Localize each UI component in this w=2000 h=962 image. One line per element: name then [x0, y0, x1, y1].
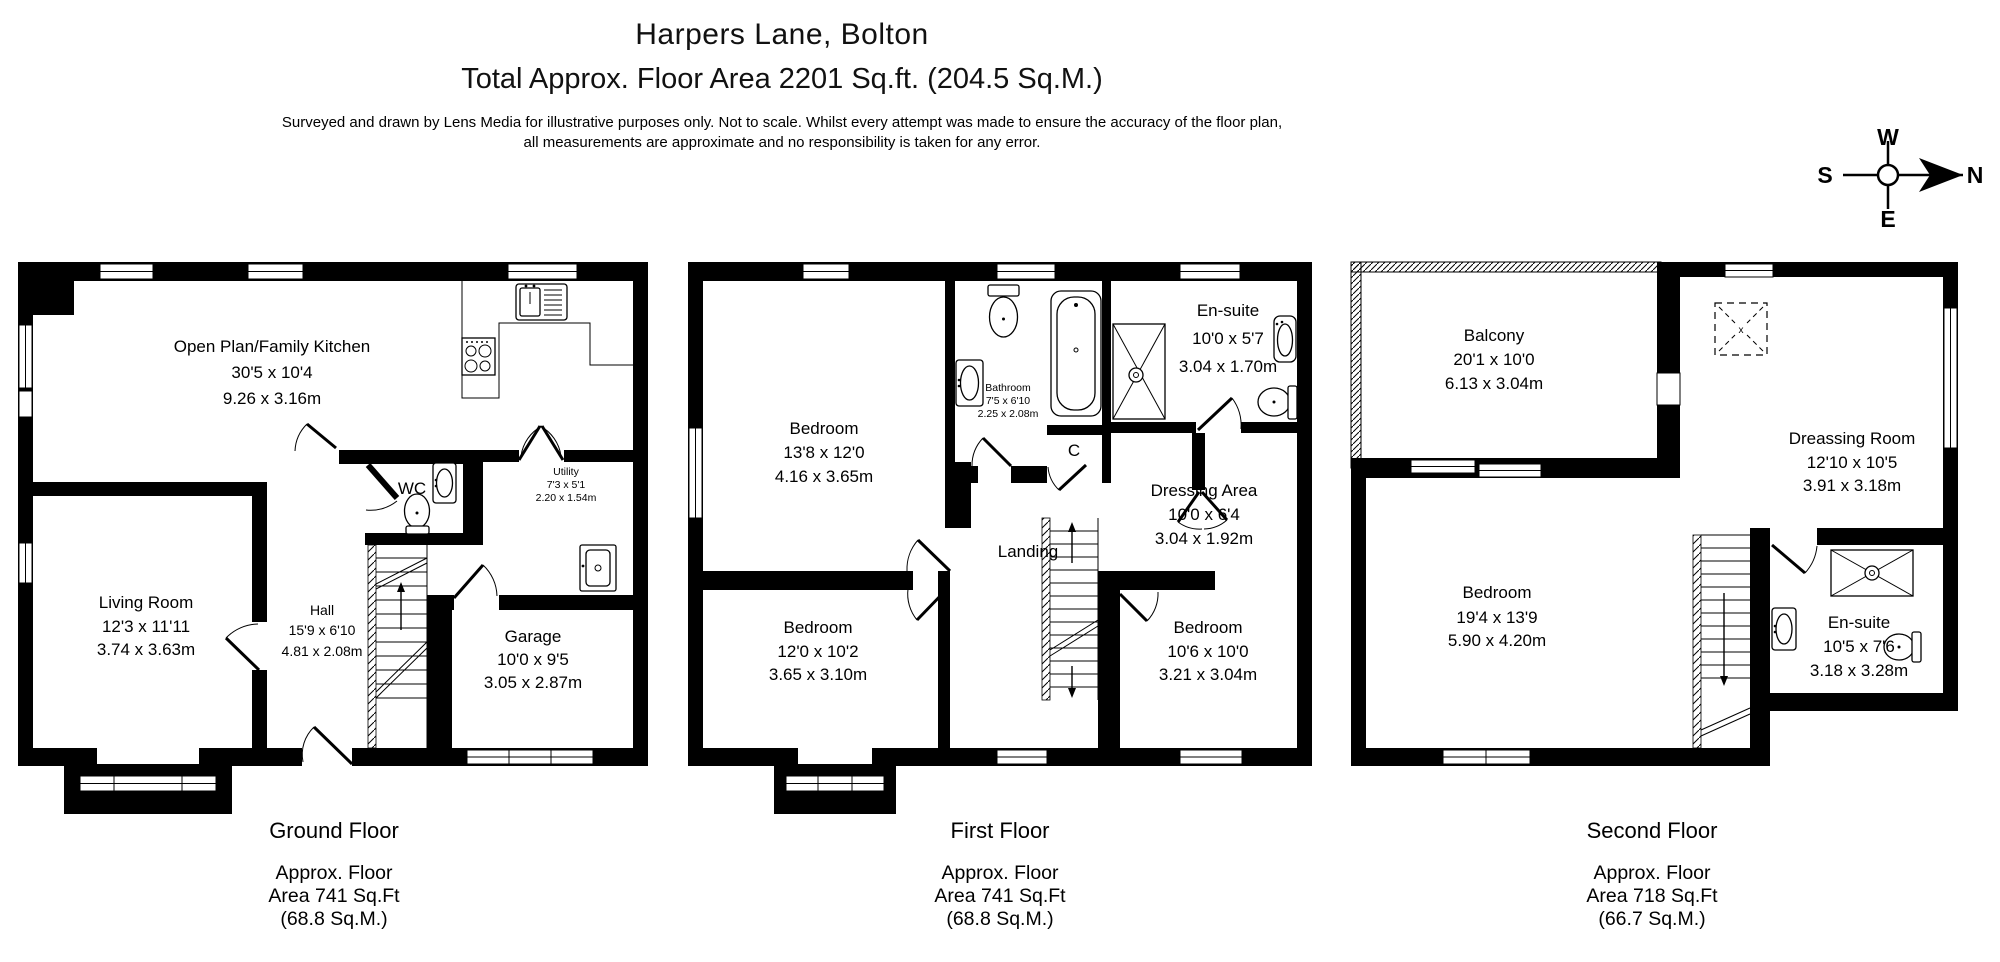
toilet-icon [1258, 386, 1297, 419]
floor-area-line: Approx. Floor [124, 862, 544, 885]
skylight-icon: x [1715, 303, 1767, 355]
ground-floor-caption: Ground Floor Approx. Floor Area 741 Sq.F… [124, 818, 544, 931]
svg-text:15'9 x 6'10: 15'9 x 6'10 [289, 622, 356, 638]
bay-window [64, 748, 232, 814]
svg-text:10'0 x 5'7: 10'0 x 5'7 [1192, 329, 1264, 348]
sink-icon [1274, 316, 1296, 362]
utility-label: Utility 7'3 x 5'1 2.20 x 1.54m [536, 466, 597, 504]
floorplan-page: Harpers Lane, Bolton Total Approx. Floor… [0, 0, 2000, 962]
svg-text:3.65 x 3.10m: 3.65 x 3.10m [769, 665, 867, 684]
ground-floor-plan: Open Plan/Family Kitchen 30'5 x 10'4 9.2… [14, 258, 648, 818]
toilet-icon [405, 494, 430, 534]
staircase [1693, 535, 1750, 748]
svg-text:20'1 x 10'0: 20'1 x 10'0 [1453, 350, 1534, 369]
living-room-label: Living Room 12'3 x 11'11 3.74 x 3.63m [97, 593, 195, 659]
svg-text:3.18 x 3.28m: 3.18 x 3.28m [1810, 661, 1908, 680]
shower-icon [1113, 324, 1165, 419]
svg-text:Bathroom: Bathroom [985, 382, 1031, 394]
svg-text:6.13 x 3.04m: 6.13 x 3.04m [1445, 374, 1543, 393]
svg-text:7'3 x 5'1: 7'3 x 5'1 [547, 479, 586, 491]
window [1443, 750, 1530, 764]
window [689, 428, 702, 518]
svg-text:13'8 x 12'0: 13'8 x 12'0 [783, 443, 864, 462]
svg-text:En-suite: En-suite [1197, 301, 1259, 320]
second-floor-caption: Second Floor Approx. Floor Area 718 Sq.F… [1442, 818, 1862, 931]
ensuite-label: En-suite 10'0 x 5'7 3.04 x 1.70m [1179, 301, 1277, 376]
sink-icon [956, 360, 983, 406]
svg-text:Utility: Utility [553, 466, 579, 478]
svg-text:30'5 x 10'4: 30'5 x 10'4 [231, 363, 312, 382]
svg-text:10'0 x 9'5: 10'0 x 9'5 [497, 650, 569, 669]
floor-area-line: (68.8 Sq.M.) [790, 908, 1210, 931]
svg-text:Open Plan/Family Kitchen: Open Plan/Family Kitchen [174, 337, 371, 356]
svg-text:Garage: Garage [505, 627, 562, 646]
shower-icon [1831, 550, 1913, 596]
svg-text:3.04 x 1.92m: 3.04 x 1.92m [1155, 529, 1253, 548]
svg-text:10'6 x 10'0: 10'6 x 10'0 [1167, 642, 1248, 661]
toilet-icon [988, 285, 1019, 337]
bedroom3-door [1120, 594, 1147, 621]
second-floor-plan: x Balcony 20'1 x 1 [1347, 258, 1962, 818]
kitchen-sink-icon [516, 284, 567, 320]
floor-area-line: Area 741 Sq.Ft [124, 885, 544, 908]
svg-text:Bedroom: Bedroom [1174, 618, 1243, 637]
wc-door [368, 465, 397, 498]
garage-label: Garage 10'0 x 9'5 3.05 x 2.87m [484, 627, 582, 692]
utility-double-door [519, 426, 563, 460]
compass-north: N [1967, 162, 1984, 188]
svg-text:10'0 x 6'4: 10'0 x 6'4 [1168, 505, 1240, 524]
svg-text:Living Room: Living Room [99, 593, 194, 612]
svg-text:Hall: Hall [310, 602, 334, 618]
bay-window [774, 748, 896, 814]
wc-label: WC [398, 479, 426, 498]
floor-area-line: Area 718 Sq.Ft [1442, 885, 1862, 908]
svg-text:12'3 x 11'11: 12'3 x 11'11 [102, 617, 190, 636]
svg-text:3.21 x 3.04m: 3.21 x 3.04m [1159, 665, 1257, 684]
svg-text:4.16 x 3.65m: 4.16 x 3.65m [775, 467, 873, 486]
svg-text:Dreassing Room: Dreassing Room [1789, 429, 1916, 448]
svg-text:10'5 x 7'6: 10'5 x 7'6 [1823, 637, 1895, 656]
floor-area-line: Approx. Floor [1442, 862, 1862, 885]
kitchen-label: Open Plan/Family Kitchen 30'5 x 10'4 9.2… [174, 337, 371, 408]
cupboard-door [1059, 465, 1086, 490]
balcony-label: Balcony 20'1 x 10'0 6.13 x 3.04m [1445, 326, 1543, 393]
floor-name: First Floor [790, 818, 1210, 844]
header: Harpers Lane, Bolton Total Approx. Floor… [0, 0, 1564, 153]
svg-text:Bedroom: Bedroom [790, 419, 859, 438]
svg-text:19'4 x 13'9: 19'4 x 13'9 [1456, 608, 1537, 627]
disclaimer-line-1: Surveyed and drawn by Lens Media for ill… [0, 113, 1564, 133]
svg-text:En-suite: En-suite [1828, 613, 1890, 632]
floor-area-line: (68.8 Sq.M.) [124, 908, 544, 931]
floor-name: Ground Floor [124, 818, 544, 844]
bedroom2-label: Bedroom 12'0 x 10'2 3.65 x 3.10m [769, 618, 867, 684]
svg-text:Bedroom: Bedroom [784, 618, 853, 637]
ensuite-door [1198, 398, 1232, 430]
svg-text:Bedroom: Bedroom [1463, 583, 1532, 602]
svg-text:3.91 x 3.18m: 3.91 x 3.18m [1803, 476, 1901, 495]
staircase [368, 545, 427, 748]
cupboard-label: C [1068, 441, 1080, 460]
compass-west: W [1877, 124, 1899, 150]
garage-door [454, 565, 483, 598]
ensuite-label: En-suite 10'5 x 7'6 3.18 x 3.28m [1810, 613, 1908, 680]
sink-icon [1772, 608, 1796, 650]
window [1944, 308, 1957, 448]
svg-text:5.90 x 4.20m: 5.90 x 4.20m [1448, 631, 1546, 650]
living-room-door [226, 638, 259, 670]
svg-text:4.81 x 2.08m: 4.81 x 2.08m [282, 643, 363, 659]
ensuite-door [1772, 545, 1805, 573]
floor-area-line: (66.7 Sq.M.) [1442, 908, 1862, 931]
landing-label: Landing [998, 542, 1059, 561]
first-floor-plan: Bathroom 7'5 x 6'10 2.25 x 2.08m C [688, 258, 1312, 818]
floor-name: Second Floor [1442, 818, 1862, 844]
first-floor-caption: First Floor Approx. Floor Area 741 Sq.Ft… [790, 818, 1210, 931]
svg-text:7'5 x 6'10: 7'5 x 6'10 [986, 395, 1030, 407]
bedroom1-label: Bedroom 13'8 x 12'0 4.16 x 3.65m [775, 419, 873, 486]
disclaimer: Surveyed and drawn by Lens Media for ill… [0, 113, 1564, 153]
svg-text:2.25 x 2.08m: 2.25 x 2.08m [978, 408, 1039, 420]
compass-east: E [1880, 206, 1895, 232]
hob-icon [462, 338, 495, 375]
washing-machine-icon [580, 545, 616, 591]
kitchen-door [307, 424, 336, 448]
svg-text:Balcony: Balcony [1464, 326, 1525, 345]
bathroom-label: Bathroom 7'5 x 6'10 2.25 x 2.08m [978, 382, 1039, 420]
floor-area-line: Area 741 Sq.Ft [790, 885, 1210, 908]
svg-text:12'10 x 10'5: 12'10 x 10'5 [1807, 453, 1898, 472]
bedroom3-label: Bedroom 10'6 x 10'0 3.21 x 3.04m [1159, 618, 1257, 684]
bath-icon [1051, 291, 1101, 416]
bedroom-label: Bedroom 19'4 x 13'9 5.90 x 4.20m [1448, 583, 1546, 650]
svg-text:9.26 x 3.16m: 9.26 x 3.16m [223, 389, 321, 408]
bedroom1-door [918, 540, 950, 571]
dressing-room-label: Dreassing Room 12'10 x 10'5 3.91 x 3.18m [1789, 429, 1916, 495]
svg-text:Dressing Area: Dressing Area [1151, 481, 1258, 500]
disclaimer-line-2: all measurements are approximate and no … [0, 133, 1564, 153]
window [1657, 373, 1680, 405]
bathroom-door [983, 438, 1011, 466]
svg-text:x: x [1739, 325, 1744, 336]
hall-label: Hall 15'9 x 6'10 4.81 x 2.08m [282, 602, 363, 659]
svg-text:3.04 x 1.70m: 3.04 x 1.70m [1179, 357, 1277, 376]
dressing-area-label: Dressing Area 10'0 x 6'4 3.04 x 1.92m [1151, 481, 1258, 548]
compass-south: S [1817, 162, 1832, 188]
page-title: Harpers Lane, Bolton [0, 18, 1564, 52]
sink-icon [433, 463, 456, 503]
svg-text:3.05 x 2.87m: 3.05 x 2.87m [484, 673, 582, 692]
compass-icon: W S E N [1795, 105, 1995, 235]
total-area-subtitle: Total Approx. Floor Area 2201 Sq.ft. (20… [0, 63, 1564, 96]
svg-text:3.74 x 3.63m: 3.74 x 3.63m [97, 640, 195, 659]
floor-area-line: Approx. Floor [790, 862, 1210, 885]
svg-text:12'0 x 10'2: 12'0 x 10'2 [777, 642, 858, 661]
svg-text:2.20 x 1.54m: 2.20 x 1.54m [536, 492, 597, 504]
window [467, 750, 593, 764]
